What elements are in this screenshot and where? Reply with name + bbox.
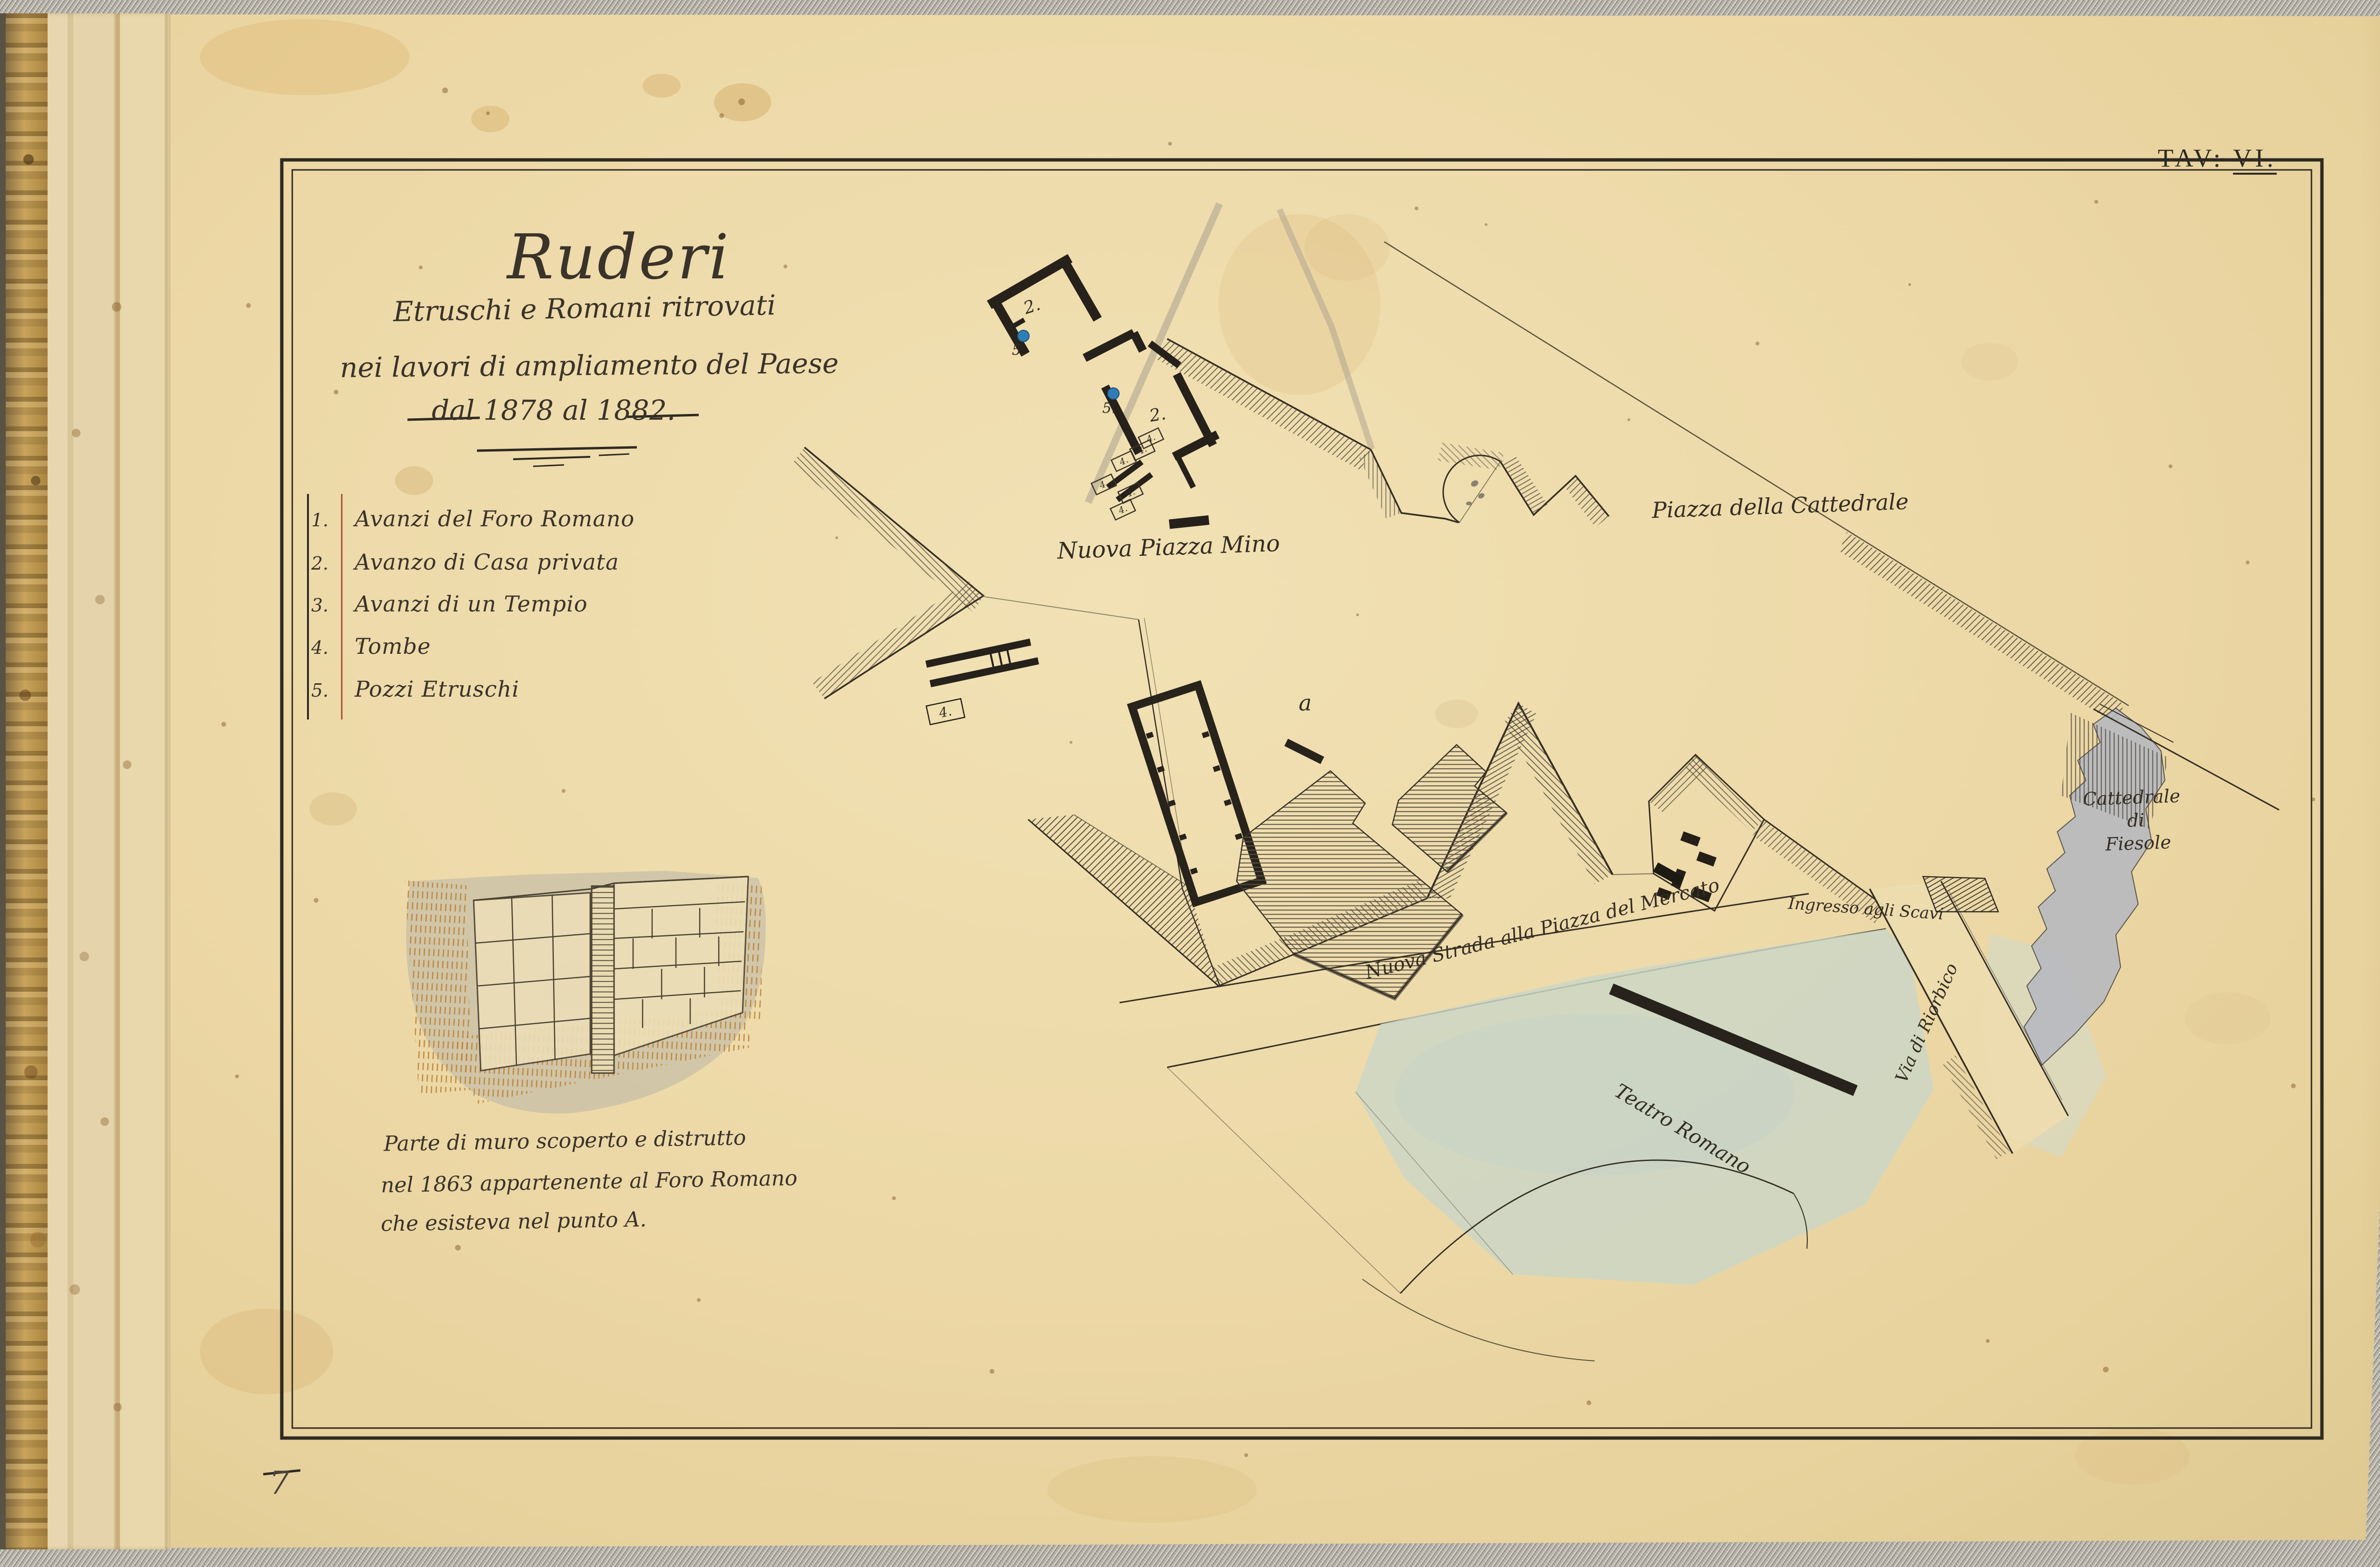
map-marker-1: 5. — [1012, 342, 1026, 359]
map-label-point-a: a — [1299, 690, 1311, 716]
map-label-cattedrale-line2: di — [2127, 809, 2145, 831]
scanned-page: TAV: VI. Ruderi Etruschi e Romani ritrov… — [0, 0, 2380, 1567]
map-label-ingresso-scavi: Ingresso agli Scavi — [1788, 894, 1944, 924]
map-marker-3: 5. — [1102, 400, 1116, 417]
map-label-piazza-mino: Nuova Piazza Mino — [1057, 530, 1280, 564]
map-label-cattedrale-line3: Fiesole — [2105, 832, 2171, 855]
map-marker-5: 4. — [1136, 443, 1149, 457]
map-marker-4: 4. — [1145, 432, 1157, 445]
map-label-teatro-romano: Teatro Romano — [1610, 1079, 1755, 1178]
map-label-strada-mercato: Nuova Strada alla Piazza del Mercato — [1363, 874, 1722, 984]
map-marker-8: 4. — [1124, 486, 1137, 500]
map-marker-9: 4. — [1117, 503, 1129, 516]
map-text-layer: Nuova Piazza MinoPiazza della Cattedrale… — [0, 0, 2380, 1567]
map-label-via-riorbico: Via di Riorbico — [1892, 960, 1962, 1085]
map-label-cattedrale-line1: Cattedrale — [2082, 785, 2181, 809]
map-marker-7: 4. — [1098, 478, 1110, 491]
map-marker-6: 4. — [1118, 454, 1130, 468]
map-marker-2: 2. — [1148, 404, 1168, 426]
map-marker-0: 2. — [1021, 295, 1042, 318]
map-label-piazza-cattedrale: Piazza della Cattedrale — [1652, 489, 1909, 523]
map-marker-10: 4. — [938, 703, 953, 721]
